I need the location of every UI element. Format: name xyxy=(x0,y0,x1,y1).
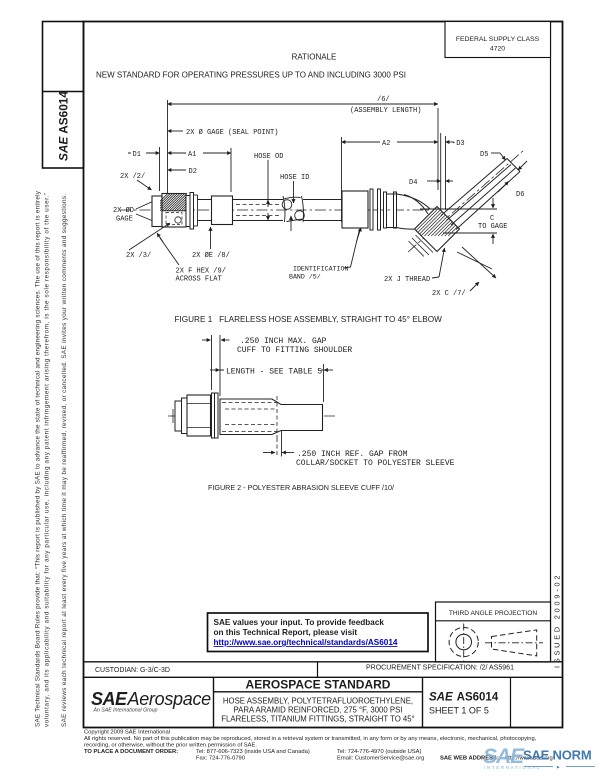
svg-text:INTERNATIONAL: INTERNATIONAL xyxy=(484,765,541,770)
svg-text:D5: D5 xyxy=(480,151,488,159)
svg-text:A2: A2 xyxy=(382,140,390,148)
svg-text:PROCUREMENT SPECIFICATION: /2: PROCUREMENT SPECIFICATION: /2/ AS5961 xyxy=(366,665,514,672)
svg-text:GAGE: GAGE xyxy=(116,216,133,224)
svg-text:LENGTH - SEE TABLE 5: LENGTH - SEE TABLE 5 xyxy=(226,368,322,377)
svg-text:FLARELESS, TITANIUM FITTINGS,: FLARELESS, TITANIUM FITTINGS, STRAIGHT T… xyxy=(221,715,414,724)
svg-text:CUFF TO FITTING SHOULDER: CUFF TO FITTING SHOULDER xyxy=(237,346,352,355)
svg-text:RATIONALE: RATIONALE xyxy=(292,53,337,62)
svg-text:HOSE ASSEMBLY, POLYTETRAFLUORO: HOSE ASSEMBLY, POLYTETRAFLUOROETHYLENE, xyxy=(223,697,413,706)
svg-text:SAE values your input. To prov: SAE values your input. To provide feedba… xyxy=(214,618,385,627)
svg-text:(ASSEMBLY LENGTH): (ASSEMBLY LENGTH) xyxy=(350,107,421,115)
svg-text:TO GAGE: TO GAGE xyxy=(478,223,507,231)
svg-text:Copyright 2009 SAE Internation: Copyright 2009 SAE International xyxy=(84,730,170,736)
svg-text:BAND /5/: BAND /5/ xyxy=(289,274,321,281)
svg-text:SAEAerospace: SAEAerospace xyxy=(91,689,211,709)
svg-text:►: ► xyxy=(556,765,561,770)
svg-text:An SAE International Group: An SAE International Group xyxy=(93,708,158,714)
svg-text:Tel: 877-606-7323 (inside USA: Tel: 877-606-7323 (inside USA and Canada… xyxy=(196,749,310,755)
svg-text:http://www.sae.org/technical/s: http://www.sae.org/technical/standards/A… xyxy=(214,638,398,647)
svg-text:ACROSS FLAT: ACROSS FLAT xyxy=(176,276,222,284)
svg-text:THIRD ANGLE PROJECTION: THIRD ANGLE PROJECTION xyxy=(449,610,538,617)
svg-text:2X /2/: 2X /2/ xyxy=(120,173,145,181)
svg-text:SAE NORM: SAE NORM xyxy=(523,748,591,763)
svg-text:FIGURE 1 FLARELESS HOSE ASSE: FIGURE 1 FLARELESS HOSE ASSEMBLY, STRAIG… xyxy=(175,315,443,324)
svg-text:/6/: /6/ xyxy=(377,96,390,104)
svg-text:2X ØD: 2X ØD xyxy=(113,206,134,215)
svg-text:voluntary, and its applicabili: voluntary, and its applicability and sui… xyxy=(44,192,51,727)
svg-text:FIGURE 2 - POLYESTER ABRASION: FIGURE 2 - POLYESTER ABRASION SLEEVE CUF… xyxy=(208,483,394,492)
svg-text:2X ØE /8/: 2X ØE /8/ xyxy=(192,251,230,260)
svg-text:on this Technical Report, plea: on this Technical Report, please visit xyxy=(214,628,358,637)
svg-text:Email: CustomerService@sae.org: Email: CustomerService@sae.org xyxy=(337,756,424,762)
svg-text:HOSE ID: HOSE ID xyxy=(280,174,309,182)
svg-text:D1: D1 xyxy=(133,151,141,159)
svg-text:SAEAS6014: SAEAS6014 xyxy=(429,692,499,704)
svg-text:D2: D2 xyxy=(189,168,197,176)
svg-text:2X F HEX /9/: 2X F HEX /9/ xyxy=(176,268,226,276)
svg-text:IDENTIFICATION: IDENTIFICATION xyxy=(293,266,348,273)
svg-text:SAEAS6014: SAEAS6014 xyxy=(57,91,71,161)
svg-text:CUSTODIAN: G-3/C-3D: CUSTODIAN: G-3/C-3D xyxy=(95,667,170,674)
svg-text:A1: A1 xyxy=(188,151,196,159)
svg-text:HOSE OD: HOSE OD xyxy=(254,153,283,161)
svg-text:Tel: 724-776-4970 (outside US: Tel: 724-776-4970 (outside USA) xyxy=(337,749,421,755)
svg-text:D4: D4 xyxy=(409,179,417,187)
svg-text:Fax: 724-776-0790: Fax: 724-776-0790 xyxy=(196,756,245,762)
svg-text:2X J THREAD: 2X J THREAD xyxy=(384,276,430,284)
svg-text:-D3: -D3 xyxy=(452,140,465,148)
svg-text:NEW STANDARD FOR OPERATING PRE: NEW STANDARD FOR OPERATING PRESSURES UP … xyxy=(96,71,406,80)
svg-text:recording, or otherwise, witho: recording, or otherwise, without the pri… xyxy=(84,743,257,749)
svg-text:TO PLACE A DOCUMENT ORDER:: TO PLACE A DOCUMENT ORDER: xyxy=(84,749,178,755)
svg-text:SAE reviews each technical rep: SAE reviews each technical report at lea… xyxy=(61,194,68,728)
svg-text:All rights reserved. No part o: All rights reserved. No part of this pub… xyxy=(84,736,537,742)
svg-text:FEDERAL SUPPLY CLASS: FEDERAL SUPPLY CLASS xyxy=(456,36,540,43)
svg-text:.250 INCH MAX. GAP: .250 INCH MAX. GAP xyxy=(240,337,327,346)
svg-text:COLLAR/SOCKET TO POLYESTER SLE: COLLAR/SOCKET TO POLYESTER SLEEVE xyxy=(296,459,455,468)
svg-text:4720: 4720 xyxy=(490,46,505,53)
svg-text:ISSUED 2009-02: ISSUED 2009-02 xyxy=(553,573,562,668)
svg-text:SAE Technical Standards Board: SAE Technical Standards Board Rules prov… xyxy=(35,190,42,727)
svg-text:2X C /7/: 2X C /7/ xyxy=(432,290,466,298)
svg-text:SHEET 1 OF 5: SHEET 1 OF 5 xyxy=(429,706,489,716)
svg-text:D6: D6 xyxy=(516,191,524,199)
svg-text:PARA ARAMID REINFORCED, 275 °F: PARA ARAMID REINFORCED, 275 °F, 3000 PSI xyxy=(234,706,403,715)
svg-text:.250 INCH REF. GAP FROM: .250 INCH REF. GAP FROM xyxy=(297,450,408,459)
svg-text:C: C xyxy=(490,215,494,223)
svg-text:AEROSPACE STANDARD: AEROSPACE STANDARD xyxy=(246,678,391,692)
svg-text:2X Ø GAGE (SEAL POINT): 2X Ø GAGE (SEAL POINT) xyxy=(186,128,278,137)
svg-text:2X /3/: 2X /3/ xyxy=(126,252,151,260)
